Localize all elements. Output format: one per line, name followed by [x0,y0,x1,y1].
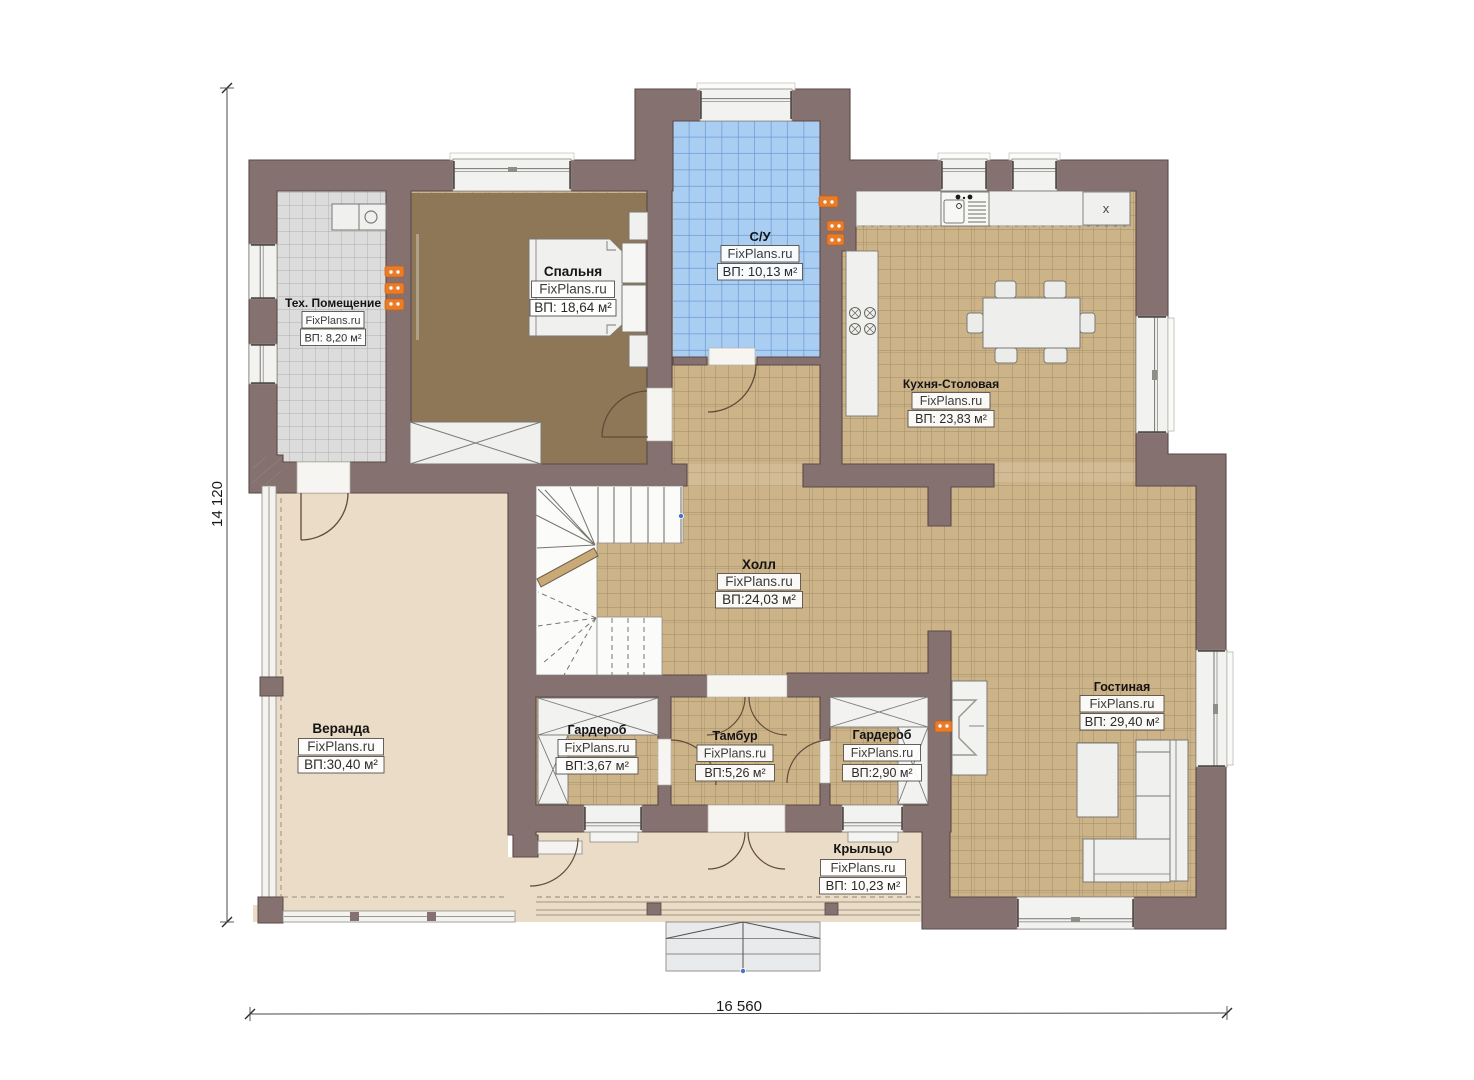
svg-text:ВП:24,03 м²: ВП:24,03 м² [722,592,796,607]
svg-text:FixPlans.ru: FixPlans.ru [704,747,767,761]
svg-text:Крыльцо: Крыльцо [833,841,892,856]
svg-text:FixPlans.ru: FixPlans.ru [305,315,360,327]
svg-text:ВП:2,90 м²: ВП:2,90 м² [851,766,912,780]
svg-text:ВП: 10,13 м²: ВП: 10,13 м² [723,264,798,279]
svg-text:С/У: С/У [749,229,771,244]
svg-text:ВП:5,26 м²: ВП:5,26 м² [704,766,765,780]
svg-text:FixPlans.ru: FixPlans.ru [564,740,629,755]
svg-text:Холл: Холл [742,557,776,572]
svg-text:ВП:3,67 м²: ВП:3,67 м² [565,758,629,773]
svg-text:Веранда: Веранда [312,721,370,736]
svg-text:Гостиная: Гостиная [1094,680,1151,694]
svg-text:Тамбур: Тамбур [712,729,758,743]
svg-text:ВП: 29,40 м²: ВП: 29,40 м² [1085,714,1160,729]
svg-text:FixPlans.ru: FixPlans.ru [539,282,607,297]
svg-text:FixPlans.ru: FixPlans.ru [830,860,895,875]
svg-text:FixPlans.ru: FixPlans.ru [1089,696,1154,711]
svg-text:FixPlans.ru: FixPlans.ru [851,746,914,760]
svg-text:FixPlans.ru: FixPlans.ru [727,246,792,261]
svg-text:16 560: 16 560 [716,998,762,1015]
svg-text:Гардероб: Гардероб [852,728,911,742]
svg-text:Спальня: Спальня [544,264,602,279]
svg-text:14 120: 14 120 [209,481,226,527]
svg-text:FixPlans.ru: FixPlans.ru [307,739,375,754]
svg-text:ВП: 18,64 м²: ВП: 18,64 м² [534,300,612,315]
svg-text:ВП: 10,23 м²: ВП: 10,23 м² [826,878,901,893]
svg-text:Гардероб: Гардероб [567,723,626,737]
svg-text:ВП: 8,20 м²: ВП: 8,20 м² [304,333,361,345]
svg-text:Кухня-Столовая: Кухня-Столовая [903,377,999,391]
svg-text:ВП: 23,83 м²: ВП: 23,83 м² [915,412,987,426]
svg-text:ВП:30,40 м²: ВП:30,40 м² [304,757,378,772]
svg-text:FixPlans.ru: FixPlans.ru [725,574,793,589]
svg-text:x: x [1103,201,1110,216]
svg-text:Тех. Помещение: Тех. Помещение [285,296,381,310]
svg-text:FixPlans.ru: FixPlans.ru [920,394,983,408]
